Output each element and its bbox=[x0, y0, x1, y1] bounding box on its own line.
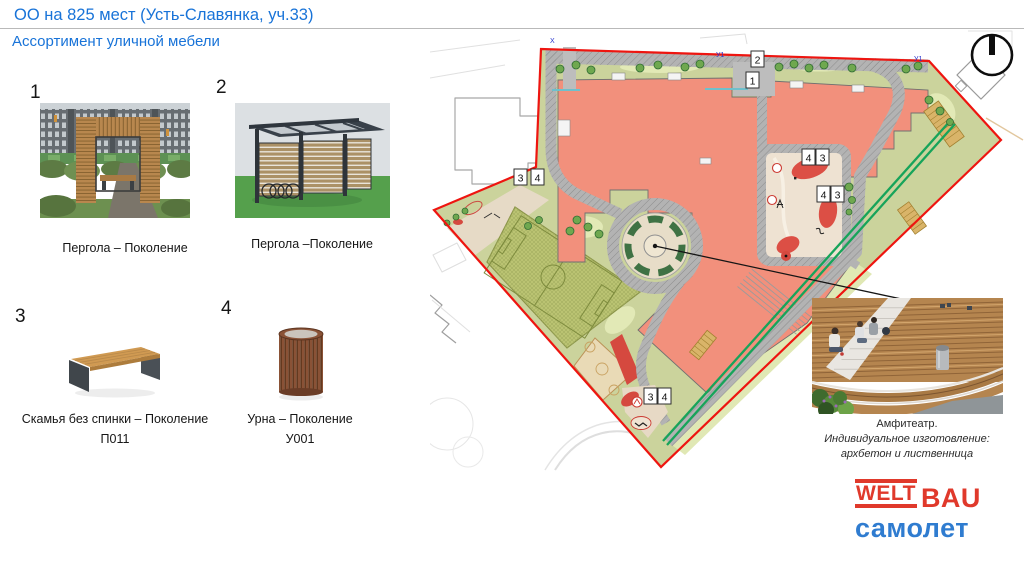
pergola-photo-1 bbox=[40, 103, 190, 218]
page-title: ОО на 825 мест (Усть-Славянка, уч.33) bbox=[14, 6, 313, 25]
map-marker-label: 4 bbox=[806, 153, 812, 165]
urn-photo bbox=[270, 318, 332, 402]
amphitheater-caption-line2: Индивидуальное изготовление: bbox=[797, 432, 1017, 447]
item-code-3: П011 bbox=[5, 431, 225, 447]
page-subtitle: Ассортимент уличной мебели bbox=[12, 33, 220, 50]
item-caption-1: Пергола – Поколение bbox=[25, 240, 225, 256]
item-code-4: У001 bbox=[200, 431, 400, 447]
logo-brand: самолет bbox=[855, 513, 981, 544]
amphitheater-scene bbox=[812, 298, 1003, 414]
playground-courtyard bbox=[766, 153, 842, 261]
item-number-4: 4 bbox=[221, 298, 232, 320]
item-number-2: 2 bbox=[216, 77, 227, 99]
item-number-1: 1 bbox=[30, 82, 41, 104]
header-divider bbox=[0, 28, 1024, 29]
amphitheater-caption-line1: Амфитеатр. bbox=[797, 417, 1017, 432]
amphitheater-caption-line3: архбетон и лиственница bbox=[797, 447, 1017, 462]
pergola-photo-2 bbox=[235, 103, 390, 218]
map-marker-label: 3 bbox=[835, 190, 841, 202]
map-marker-label: 4 bbox=[662, 392, 668, 404]
bench-render bbox=[69, 347, 160, 398]
slide: ОО на 825 мест (Усть-Славянка, уч.33) Ас… bbox=[0, 0, 1024, 576]
map-blue-label: У1 bbox=[914, 56, 922, 63]
map-marker-label: 4 bbox=[535, 173, 541, 185]
map-marker-label: 3 bbox=[820, 153, 826, 165]
north-compass-icon bbox=[972, 35, 1012, 75]
item-number-3: 3 bbox=[15, 306, 26, 328]
map-marker-label: 1 bbox=[750, 76, 756, 88]
map-marker-label: 2 bbox=[755, 55, 761, 67]
map-blue-label: У1 bbox=[716, 52, 724, 59]
item-caption-4: Урна – Поколение bbox=[200, 411, 400, 427]
item-caption-3: Скамья без спинки – Поколение bbox=[5, 411, 225, 427]
bike-shelter-scene bbox=[235, 103, 390, 218]
map-marker-label: 3 bbox=[648, 392, 654, 404]
bench-photo bbox=[55, 330, 175, 402]
pergola-photo-scene bbox=[40, 103, 190, 218]
amphitheater-photo bbox=[812, 298, 1003, 414]
map-blue-label: X bbox=[550, 38, 555, 45]
logo-bau: BAU bbox=[921, 485, 981, 512]
map-marker-label: 3 bbox=[518, 173, 524, 185]
map-marker-label: 4 bbox=[821, 190, 827, 202]
logo-welt: WELT bbox=[855, 479, 917, 508]
urn-render bbox=[279, 328, 323, 401]
trash-bin bbox=[936, 345, 949, 370]
item-caption-2: Пергола –Поколение bbox=[212, 236, 412, 252]
weltbau-samolet-logo: WELT BAU самолет bbox=[855, 479, 981, 544]
amphitheater-caption: Амфитеатр. Индивидуальное изготовление: … bbox=[797, 417, 1017, 462]
